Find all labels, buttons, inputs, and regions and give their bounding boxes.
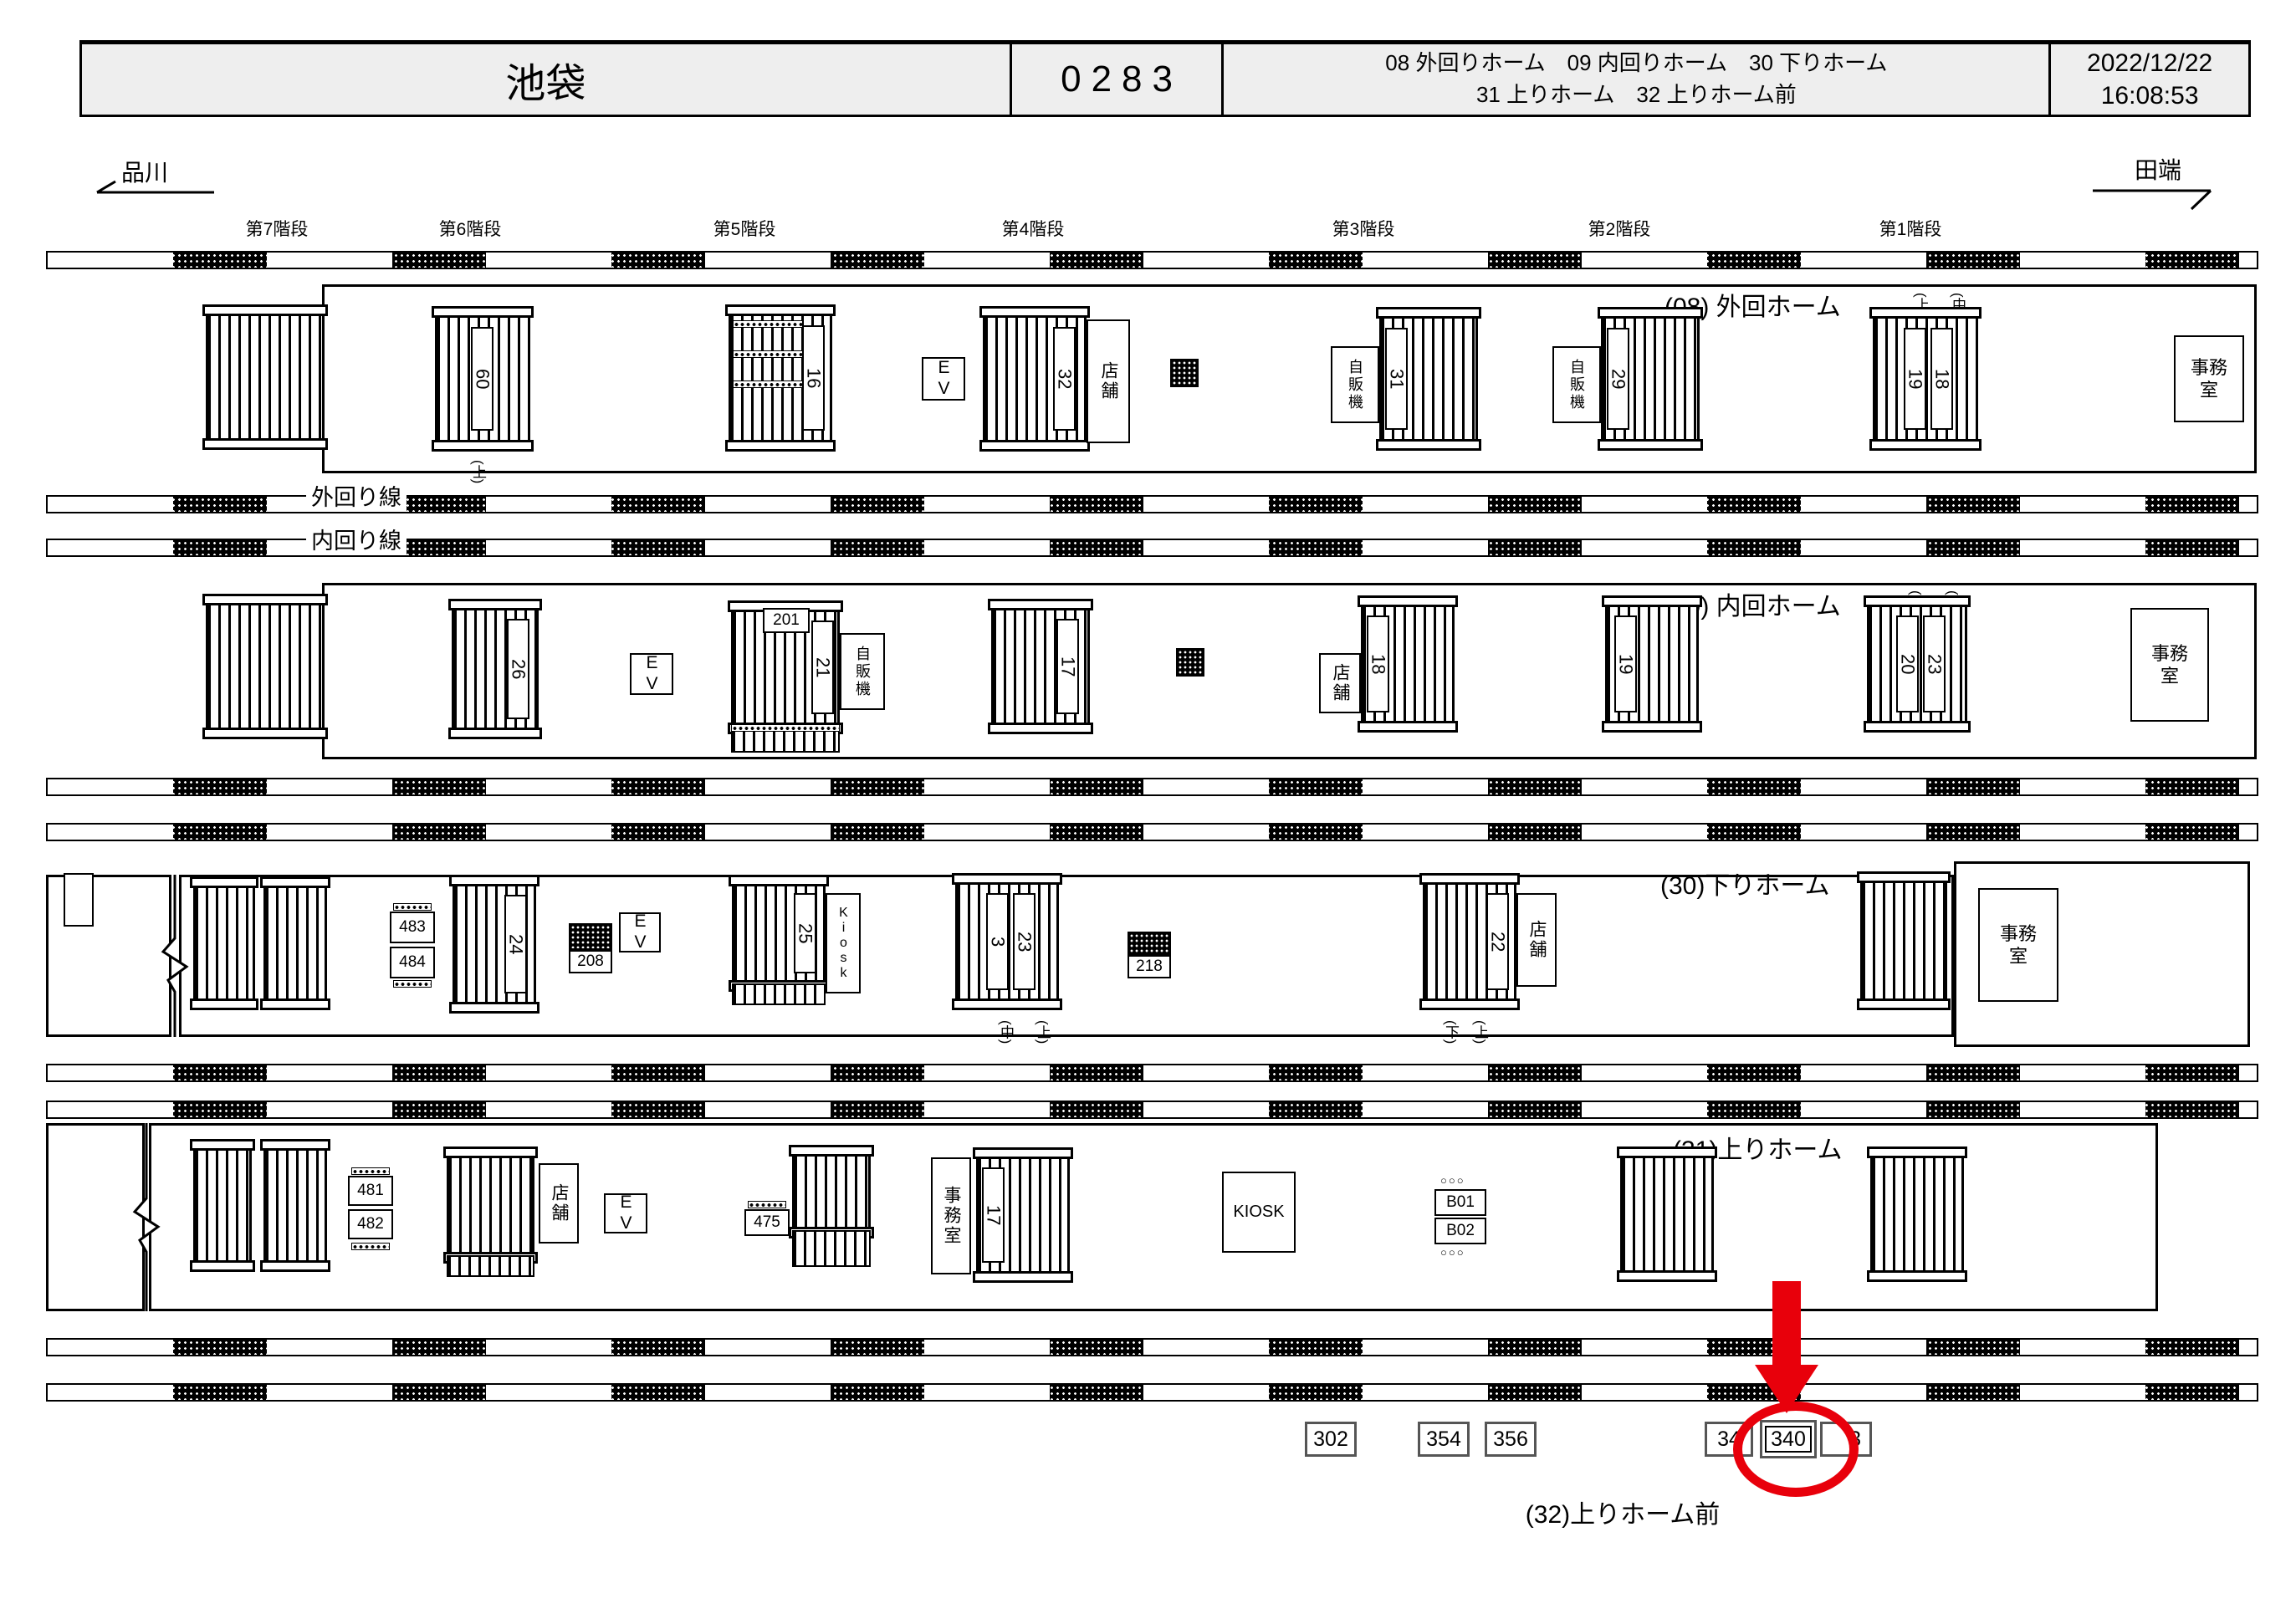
break-line [161, 875, 189, 1037]
platform-notch [64, 873, 94, 927]
position-box-354[interactable]: 354 [1418, 1422, 1470, 1457]
track-bar [46, 1383, 2258, 1402]
stairs-number: 19 [1614, 615, 1637, 712]
marker-208: 208 [569, 950, 612, 973]
shop-box: 店舗 [1516, 893, 1557, 987]
shop-box: 店舗 [1319, 653, 1361, 713]
station-code: 0283 [1012, 44, 1225, 115]
stairs-18: 18 [1361, 604, 1455, 724]
stairs [263, 1147, 327, 1264]
track-bar [46, 1101, 2258, 1119]
station-name: 池袋 [82, 44, 1012, 115]
stairs-tag-mid: (中) [999, 1009, 1013, 1055]
escalator-strip [732, 983, 826, 1005]
escalator-B01: B01 [1434, 1189, 1486, 1216]
stairs-number: 23 [1013, 893, 1036, 990]
highlight-arrow-shaft [1772, 1281, 1801, 1366]
stairs-number: 20 [1896, 615, 1919, 712]
escalator-482: 482 [348, 1209, 393, 1239]
stairs-number: 23 [1923, 615, 1946, 712]
stairs [447, 1155, 534, 1255]
track-bar [46, 778, 2258, 796]
stairs [1870, 1155, 1964, 1274]
escalator-strip [731, 729, 840, 753]
platform-30-title: (30)下りホーム [1660, 865, 1829, 901]
stairs-number: 16 [802, 325, 825, 431]
track-bar [46, 251, 2258, 269]
escalator-dots [393, 903, 432, 911]
stairs-number: 32 [1053, 327, 1076, 431]
stairs-3-23: 3 23 [955, 881, 1059, 1002]
elevator-box: EV [604, 1193, 647, 1233]
escalator-483: 483 [390, 912, 435, 943]
stairs-29: 29 [1601, 315, 1700, 442]
escalator-B02: B02 [1434, 1218, 1486, 1244]
stairs-22: 22 [1423, 881, 1516, 1002]
office-box: 事務 室 [2130, 608, 2209, 722]
office-line1: 事務 [2191, 356, 2227, 380]
stairs-17: 17 [991, 607, 1090, 726]
escalator-strip [447, 1255, 534, 1277]
stairs-number: 17 [1056, 619, 1079, 714]
stair-header-7: 第7階段 [218, 216, 335, 241]
time-text: 16:08:53 [2101, 79, 2199, 112]
office-line1: 事務 [2151, 642, 2188, 666]
hatch-marker [1128, 932, 1171, 955]
office-box-vertical: 事務室 [931, 1157, 971, 1274]
stairs-60-tag: (上) [471, 448, 485, 495]
kiosk-box: Kiosk [826, 893, 861, 993]
stair-header-4: 第4階段 [974, 216, 1092, 241]
track-bar [46, 823, 2258, 841]
stairs [1860, 880, 1947, 1002]
office-box: 事務 室 [2174, 335, 2244, 422]
stairs-number: 22 [1486, 893, 1509, 990]
hatch-marker [1176, 648, 1204, 677]
stair-header-5: 第5階段 [686, 216, 803, 241]
escalator-dots [733, 380, 803, 388]
escalator-dots [733, 350, 803, 358]
date-text: 2022/12/22 [2087, 47, 2212, 79]
hatch-marker [569, 923, 612, 950]
escalator-201: 201 [763, 608, 810, 633]
stairs-17: 17 [976, 1156, 1070, 1274]
stair-header-6: 第6階段 [412, 216, 529, 241]
escalator-dots [351, 1243, 390, 1250]
hatch-marker [1170, 359, 1199, 387]
stairs [206, 602, 325, 731]
platform-list-line1: 08 外回りホーム 09 内回りホーム 30 下りホーム [1385, 48, 1887, 79]
stairs-number: 17 [982, 1167, 1005, 1263]
stairs-26: 26 [452, 607, 539, 731]
stair-header-2: 第2階段 [1561, 216, 1678, 241]
stairs-number: 26 [507, 619, 529, 718]
stairs-tag-down: (下) [1444, 1009, 1458, 1055]
highlight-circle [1733, 1402, 1859, 1497]
office-line1: 事務 [2000, 922, 2037, 946]
escalator-481: 481 [348, 1176, 393, 1206]
escalator-dots [393, 980, 432, 988]
arrow-right-icon [2089, 176, 2219, 214]
inner-line-label: 内回り線 [306, 527, 407, 555]
platform-31-left-box [46, 1123, 145, 1311]
escalator-dots [733, 320, 803, 328]
platform-32-label: (32)上りホーム前 [1388, 1494, 1857, 1530]
outer-line-label: 外回り線 [306, 483, 407, 512]
stairs-20-23: 20 23 [1867, 604, 1967, 724]
escalator-dots [748, 1201, 786, 1208]
shop-box: 店舗 [1087, 319, 1130, 443]
datetime: 2022/12/22 16:08:53 [2051, 44, 2248, 115]
stairs-16: 16 [729, 313, 832, 443]
escalator-circles: ○○○ [1440, 1246, 1465, 1259]
kiosk-box: KIOSK [1222, 1172, 1296, 1253]
stairs [263, 885, 327, 1002]
stairs-number: 31 [1385, 328, 1408, 431]
stairs [193, 885, 255, 1002]
escalator-circles: ○○○ [1440, 1174, 1465, 1187]
elevator-box: EV [619, 912, 661, 952]
office-line2: 室 [2191, 379, 2227, 402]
stairs [792, 1153, 871, 1230]
escalator-dots [351, 1167, 390, 1175]
stairs [193, 1147, 252, 1264]
stairs-number: 60 [471, 327, 493, 431]
platform-list-line2: 31 上りホーム 32 上りホーム前 [1476, 79, 1797, 111]
stairs-19-18: 19 18 [1873, 315, 1978, 442]
stairs-number: 25 [794, 893, 816, 973]
position-box-302[interactable]: 302 [1305, 1422, 1357, 1457]
stairs-number: 3 [986, 893, 1009, 990]
arrow-left-icon [90, 177, 216, 212]
station-diagram-page: 池袋 0283 08 外回りホーム 09 内回りホーム 30 下りホーム 31 … [0, 0, 2296, 1624]
stairs-number: 19 [1904, 328, 1926, 431]
position-box-356[interactable]: 356 [1485, 1422, 1537, 1457]
office-line2: 室 [2151, 665, 2188, 688]
escalator-484: 484 [390, 947, 435, 978]
elevator-box: EV [630, 653, 673, 695]
track-bar [46, 1338, 2258, 1356]
platform-list: 08 外回りホーム 09 内回りホーム 30 下りホーム 31 上りホーム 32… [1224, 44, 2051, 115]
stairs-24: 24 [453, 883, 536, 1005]
stairs-number: 24 [504, 895, 527, 993]
stairs-60: 60 [435, 314, 530, 443]
vending-box: 自販機 [840, 633, 885, 710]
break-line [132, 1123, 161, 1311]
escalator-strip [792, 1230, 871, 1267]
office-line2: 室 [2000, 945, 2037, 968]
header-bar: 池袋 0283 08 外回りホーム 09 内回りホーム 30 下りホーム 31 … [79, 40, 2251, 117]
stair-header-3: 第3階段 [1305, 216, 1422, 241]
track-bar [46, 1064, 2258, 1082]
marker-218: 218 [1128, 955, 1171, 978]
stairs-number: 21 [811, 620, 834, 715]
stairs-number: 29 [1607, 328, 1629, 431]
elevator-box: EV [922, 357, 965, 401]
stairs-31: 31 [1379, 315, 1478, 442]
stairs [1620, 1155, 1714, 1274]
shop-box: 店舗 [539, 1163, 579, 1244]
stairs [206, 313, 325, 442]
escalator-475: 475 [744, 1209, 790, 1236]
stairs-32: 32 [983, 314, 1087, 443]
stairs-25: 25 [732, 883, 826, 983]
stairs-number: 18 [1930, 328, 1953, 431]
stairs-number: 18 [1367, 615, 1389, 712]
escalator-dots [731, 724, 840, 732]
vending-box: 自販機 [1331, 346, 1379, 423]
stair-header-1: 第1階段 [1852, 216, 1969, 241]
stairs-tag-up: (上) [1473, 1009, 1487, 1055]
vending-box: 自販機 [1552, 346, 1601, 423]
office-box: 事務 室 [1978, 888, 2058, 1002]
stairs-19: 19 [1605, 604, 1699, 724]
stairs-tag-up: (上) [1036, 1009, 1050, 1055]
